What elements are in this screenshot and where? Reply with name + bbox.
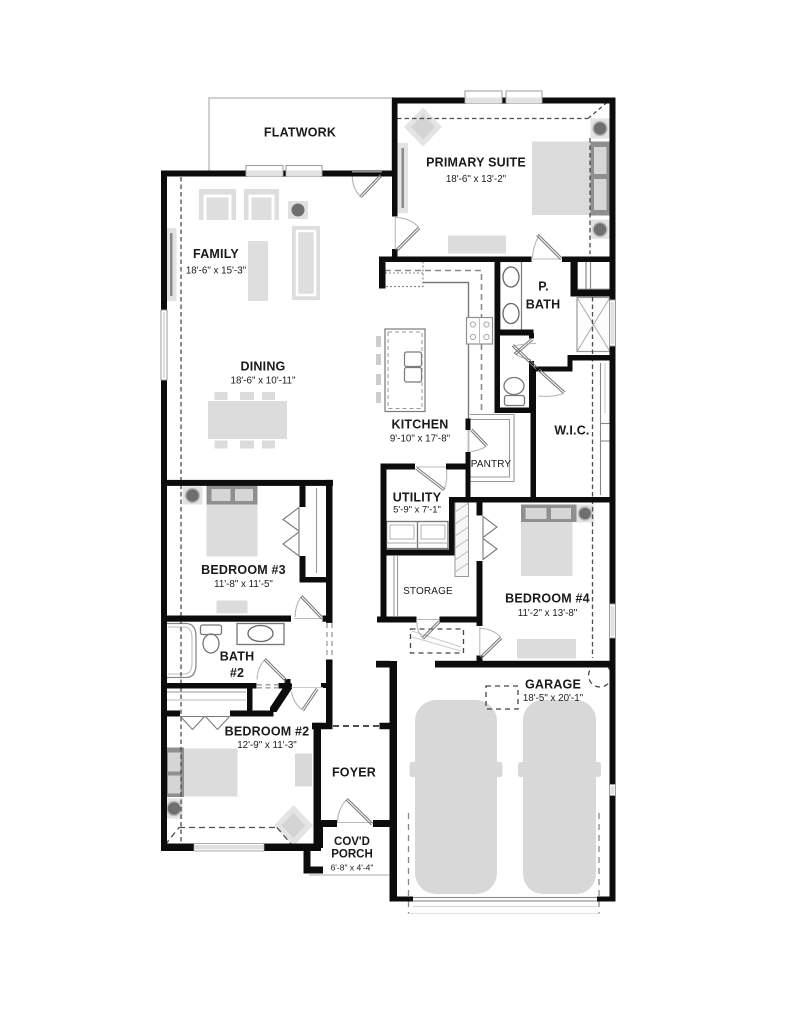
svg-text:FLATWORK: FLATWORK [264,126,336,140]
svg-text:PANTRY: PANTRY [471,459,512,470]
svg-text:5'-9" x 7'-1": 5'-9" x 7'-1" [393,505,441,516]
svg-text:11'-2" x 13'-8": 11'-2" x 13'-8" [518,608,578,619]
svg-text:18'-6" x 15'-3": 18'-6" x 15'-3" [186,266,247,277]
svg-text:11'-8" x 11'-5": 11'-8" x 11'-5" [214,579,273,590]
svg-text:18'-6" x 10'-11": 18'-6" x 10'-11" [231,376,296,387]
svg-text:PRIMARY SUITE: PRIMARY SUITE [426,156,526,170]
svg-text:FAMILY: FAMILY [193,247,239,261]
svg-text:6'-8" x 4'-4": 6'-8" x 4'-4" [331,863,374,873]
svg-text:BATH: BATH [220,650,255,664]
svg-text:W.I.C.: W.I.C. [554,424,589,438]
svg-text:#2: #2 [230,666,244,680]
svg-text:18'-6" x 13'-2": 18'-6" x 13'-2" [446,174,507,185]
svg-text:BATH: BATH [526,298,561,312]
svg-text:DINING: DINING [241,360,286,374]
svg-text:GARAGE: GARAGE [525,678,581,692]
svg-text:FOYER: FOYER [332,766,376,780]
svg-text:BEDROOM #3: BEDROOM #3 [201,563,286,577]
svg-text:COV'D: COV'D [334,836,370,848]
svg-text:18'-5" x 20'-1": 18'-5" x 20'-1" [523,693,584,704]
svg-text:P.: P. [538,280,549,294]
svg-text:BEDROOM #4: BEDROOM #4 [505,592,590,606]
svg-text:STORAGE: STORAGE [403,586,453,597]
svg-text:UTILITY: UTILITY [393,491,442,505]
svg-text:PORCH: PORCH [331,849,373,861]
svg-text:KITCHEN: KITCHEN [392,418,449,432]
svg-text:BEDROOM #2: BEDROOM #2 [225,725,310,739]
svg-text:9'-10" x 17'-8": 9'-10" x 17'-8" [390,434,451,445]
svg-text:12'-9" x 11'-3": 12'-9" x 11'-3" [237,740,297,751]
